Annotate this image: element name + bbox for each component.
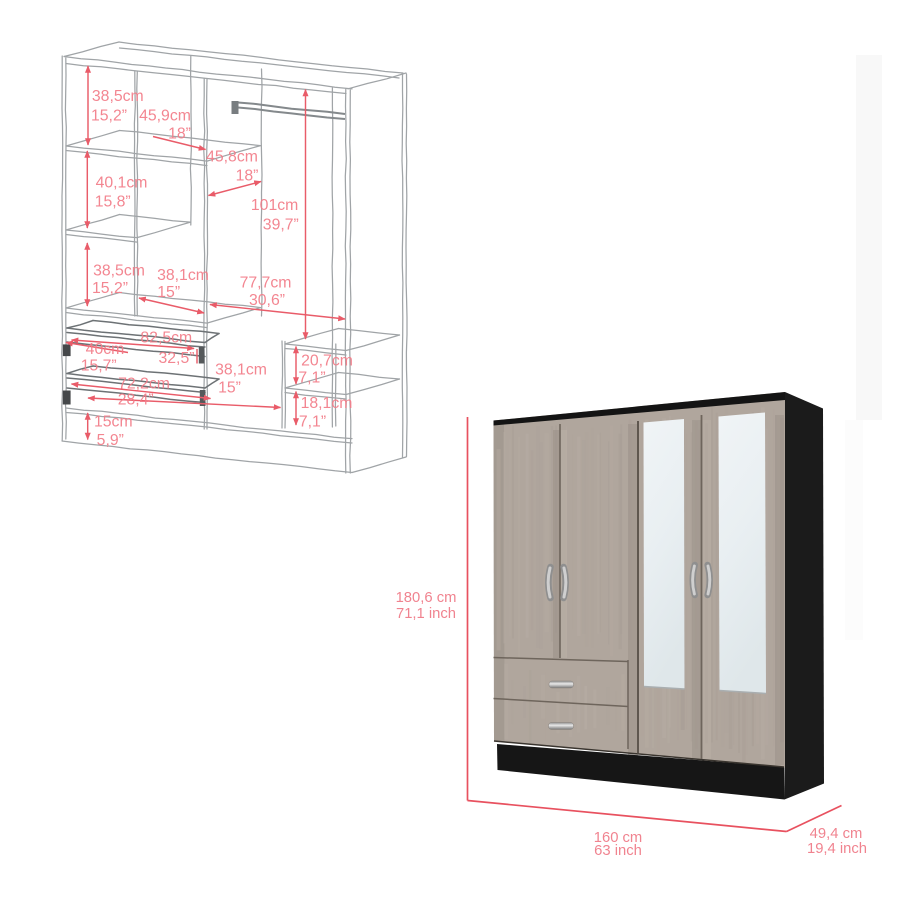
svg-text:40,1cm: 40,1cm bbox=[96, 175, 148, 192]
svg-text:45,8cm: 45,8cm bbox=[206, 149, 258, 166]
svg-text:20,7cm: 20,7cm bbox=[301, 353, 353, 370]
svg-text:82,5cm: 82,5cm bbox=[140, 330, 192, 347]
svg-text:180,6 cm: 180,6 cm bbox=[396, 590, 457, 606]
svg-text:15,7”: 15,7” bbox=[81, 357, 117, 374]
svg-text:40cm: 40cm bbox=[86, 341, 125, 358]
svg-text:32,5”: 32,5” bbox=[158, 350, 194, 367]
svg-text:7,1”: 7,1” bbox=[299, 414, 326, 431]
svg-text:18,1cm: 18,1cm bbox=[301, 395, 353, 412]
svg-text:49,4 cm: 49,4 cm bbox=[810, 826, 863, 842]
svg-text:38,5cm: 38,5cm bbox=[92, 88, 144, 105]
svg-text:101cm: 101cm bbox=[251, 197, 298, 214]
svg-text:45,9cm: 45,9cm bbox=[139, 108, 191, 125]
svg-text:18”: 18” bbox=[236, 168, 259, 185]
svg-text:63 inch: 63 inch bbox=[594, 843, 642, 859]
svg-text:15,8”: 15,8” bbox=[95, 194, 131, 211]
svg-text:15,2”: 15,2” bbox=[91, 108, 127, 125]
svg-text:72,2cm: 72,2cm bbox=[118, 376, 170, 393]
svg-text:77,7cm: 77,7cm bbox=[240, 274, 292, 291]
svg-text:15”: 15” bbox=[157, 284, 180, 301]
svg-text:39,7”: 39,7” bbox=[263, 217, 299, 234]
svg-text:38,1cm: 38,1cm bbox=[215, 362, 267, 379]
svg-text:15cm: 15cm bbox=[94, 414, 133, 431]
svg-text:30,6”: 30,6” bbox=[249, 292, 285, 309]
svg-text:19,4 inch: 19,4 inch bbox=[807, 841, 867, 857]
svg-text:15”: 15” bbox=[218, 380, 241, 397]
svg-text:38,1cm: 38,1cm bbox=[157, 267, 209, 284]
svg-text:15,2”: 15,2” bbox=[92, 280, 128, 297]
svg-text:38,5cm: 38,5cm bbox=[93, 263, 145, 280]
svg-text:71,1 inch: 71,1 inch bbox=[396, 606, 456, 622]
svg-text:18”: 18” bbox=[168, 126, 191, 143]
svg-text:7,1”: 7,1” bbox=[298, 370, 325, 387]
svg-text:5,9”: 5,9” bbox=[97, 432, 124, 449]
svg-text:28,4”: 28,4” bbox=[118, 391, 154, 408]
